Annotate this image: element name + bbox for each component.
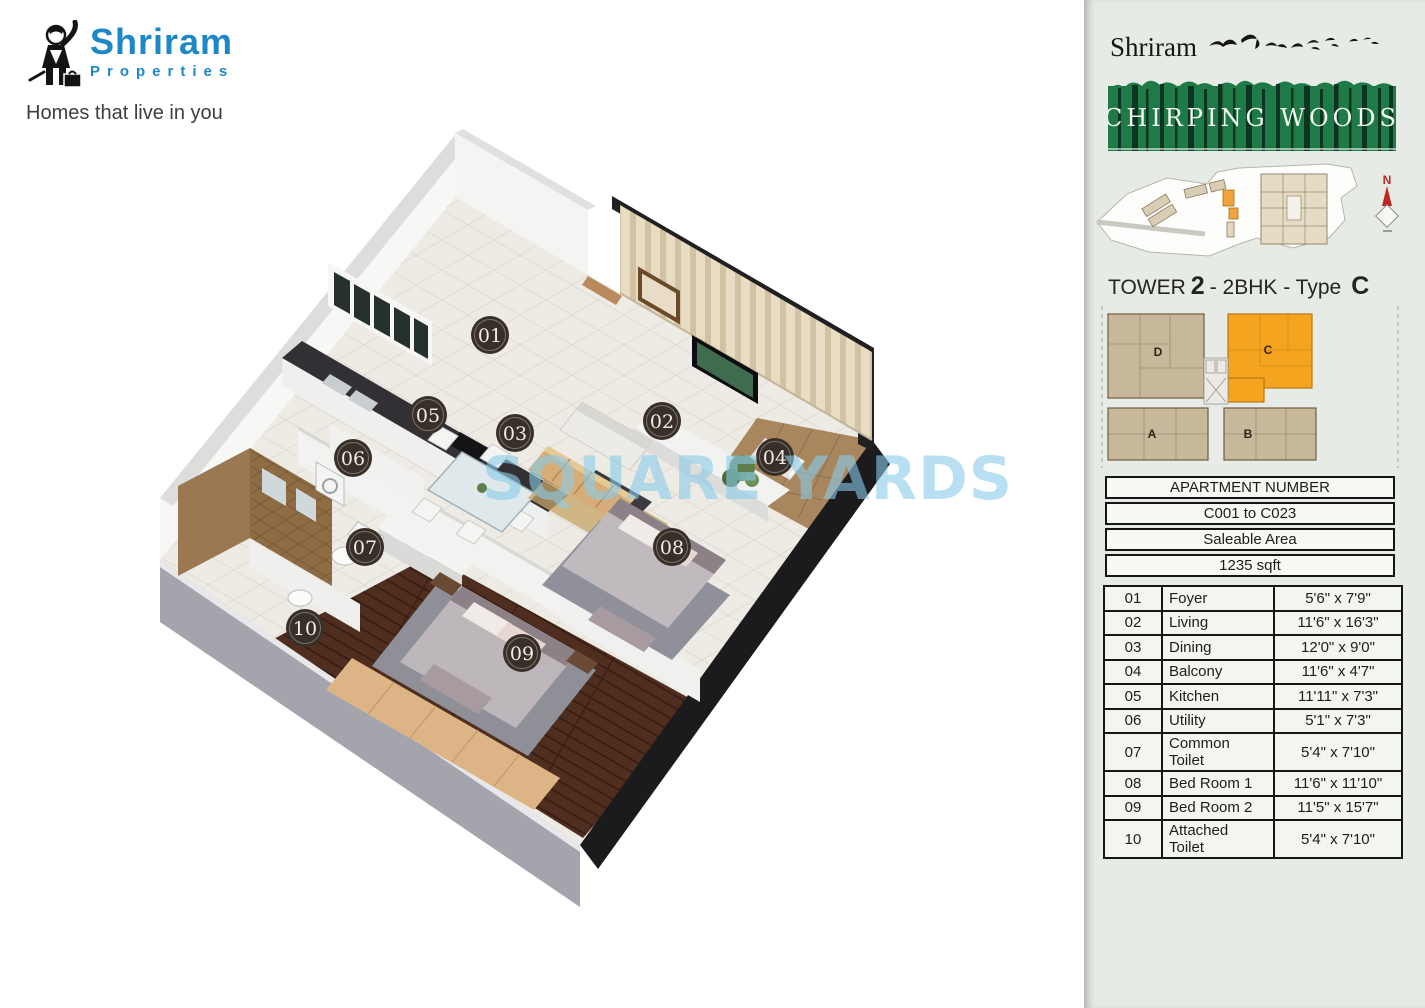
room-dims: 5'4" x 7'10" [1274, 820, 1402, 858]
site-map: N [1087, 158, 1423, 278]
room-no: 05 [1104, 684, 1162, 709]
apartment-info-table: APARTMENT NUMBER C001 to C023 Saleable A… [1105, 476, 1395, 580]
room-name: Foyer [1162, 586, 1274, 611]
room-marker-label: 07 [353, 537, 377, 559]
room-no: 01 [1104, 586, 1162, 611]
unit-d-label: D [1154, 345, 1163, 359]
apartment-number-range: C001 to C023 [1105, 502, 1395, 525]
tower-number: 2 [1191, 272, 1205, 300]
unit-c-label: C [1264, 343, 1273, 357]
room-dimension-table: 01 Foyer 5'6" x 7'9" 02 Living 11'6" x 1… [1103, 585, 1403, 859]
room-name: Bed Room 1 [1162, 771, 1274, 796]
keyplan-unit-a: A [1108, 408, 1208, 460]
room-row: 01 Foyer 5'6" x 7'9" [1104, 586, 1402, 611]
saleable-area-value: 1235 sqft [1105, 554, 1395, 577]
room-marker-label: 06 [341, 448, 365, 470]
room-marker-06: 06 [334, 439, 372, 477]
apartment-number-header: APARTMENT NUMBER [1105, 476, 1395, 499]
room-row: 07 Common Toilet 5'4" x 7'10" [1104, 733, 1402, 771]
room-row: 10 Attached Toilet 5'4" x 7'10" [1104, 820, 1402, 858]
info-sidebar: Shriram [1084, 0, 1425, 1008]
room-row: 06 Utility 5'1" x 7'3" [1104, 709, 1402, 734]
room-marker-label: 02 [650, 411, 674, 433]
project-name: CHIRPING WOODS [1108, 104, 1396, 132]
room-marker-10: 10 [286, 609, 324, 647]
unit-b-label: B [1244, 427, 1253, 441]
room-row: 02 Living 11'6" x 16'3" [1104, 611, 1402, 636]
room-no: 06 [1104, 709, 1162, 734]
room-marker-label: 10 [293, 618, 317, 640]
room-row: 09 Bed Room 2 11'5" x 15'7" [1104, 796, 1402, 821]
room-row: 05 Kitchen 11'11" x 7'3" [1104, 684, 1402, 709]
compass-n-label: N [1383, 173, 1392, 187]
room-dims: 12'0" x 9'0" [1274, 635, 1402, 660]
room-name: Dining [1162, 635, 1274, 660]
room-no: 08 [1104, 771, 1162, 796]
project-brand-name: Shriram [1110, 32, 1197, 63]
room-dims: 11'11" x 7'3" [1274, 684, 1402, 709]
room-row: 08 Bed Room 1 11'6" x 11'10" [1104, 771, 1402, 796]
room-no: 03 [1104, 635, 1162, 660]
sitemap-complex-right [1261, 174, 1327, 244]
keyplan-unit-d: D [1108, 314, 1204, 398]
room-marker-02: 02 [643, 402, 681, 440]
room-dims: 11'6" x 4'7" [1274, 660, 1402, 685]
squareyards-watermark: SQUARE YARDS [482, 444, 1013, 514]
room-marker-09: 09 [503, 634, 541, 672]
room-marker-05: 05 [409, 396, 447, 434]
floor-key-plan: D C A B [1100, 306, 1400, 468]
room-marker-01: 01 [471, 316, 509, 354]
room-marker-label: 03 [503, 423, 527, 445]
tower-label: TOWER [1108, 276, 1186, 299]
room-marker-07: 07 [346, 528, 384, 566]
room-name: Kitchen [1162, 684, 1274, 709]
tower-subtitle: - 2BHK - Type [1210, 276, 1342, 299]
room-no: 04 [1104, 660, 1162, 685]
room-name: Living [1162, 611, 1274, 636]
room-marker-label: 09 [510, 643, 534, 665]
room-name: Attached Toilet [1162, 820, 1274, 858]
floorplan-panel: 01 02 03 04 05 06 [0, 0, 1085, 1008]
logo-tagline: Homes that live in you [26, 102, 286, 125]
north-compass: N [1376, 173, 1399, 232]
room-marker-label: 01 [478, 325, 502, 347]
room-row: 03 Dining 12'0" x 9'0" [1104, 635, 1402, 660]
keyplan-core [1204, 358, 1228, 404]
room-marker-label: 08 [660, 537, 684, 559]
chirping-woods-banner: CHIRPING WOODS [1108, 76, 1396, 151]
room-marker-08: 08 [653, 528, 691, 566]
room-name: Utility [1162, 709, 1274, 734]
tower-title: TOWER2- 2BHK - TypeC [1108, 272, 1374, 301]
room-no: 10 [1104, 820, 1162, 858]
room-dims: 11'5" x 15'7" [1274, 796, 1402, 821]
room-dims: 5'4" x 7'10" [1274, 733, 1402, 771]
keyplan-unit-c: C [1228, 314, 1312, 402]
room-dims: 5'1" x 7'3" [1274, 709, 1402, 734]
room-dims: 11'6" x 11'10" [1274, 771, 1402, 796]
unit-a-label: A [1148, 427, 1157, 441]
room-marker-label: 05 [416, 405, 440, 427]
saleable-area-label: Saleable Area [1105, 528, 1395, 551]
logo-sub-text: Properties [90, 63, 234, 80]
room-dims: 11'6" x 16'3" [1274, 611, 1402, 636]
room-no: 02 [1104, 611, 1162, 636]
room-row: 04 Balcony 11'6" x 4'7" [1104, 660, 1402, 685]
room-no: 09 [1104, 796, 1162, 821]
room-name: Balcony [1162, 660, 1274, 685]
logo-brand-text: Shriram [90, 24, 234, 60]
room-name: Common Toilet [1162, 733, 1274, 771]
developer-logo: Shriram Properties Homes that live in yo… [26, 20, 286, 125]
birds-icon [1207, 30, 1382, 64]
room-dims: 5'6" x 7'9" [1274, 586, 1402, 611]
keyplan-unit-b: B [1224, 408, 1316, 460]
room-name: Bed Room 2 [1162, 796, 1274, 821]
project-brand-row: Shriram [1110, 30, 1382, 64]
shriram-mascot-icon [26, 20, 84, 94]
tower-type: C [1351, 272, 1369, 300]
room-no: 07 [1104, 733, 1162, 771]
